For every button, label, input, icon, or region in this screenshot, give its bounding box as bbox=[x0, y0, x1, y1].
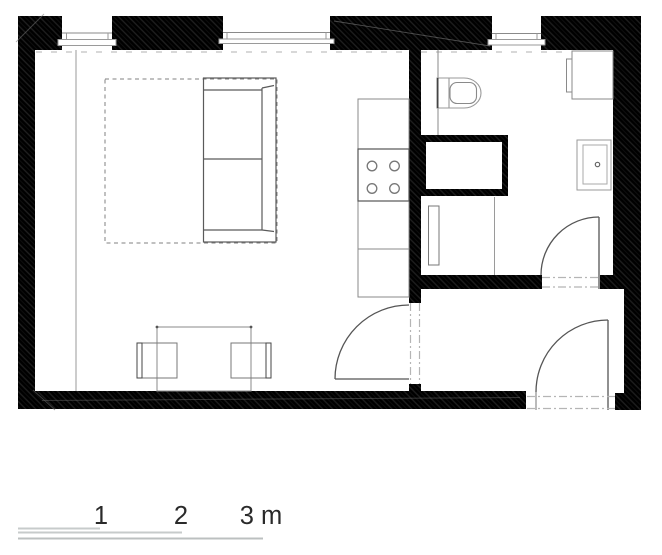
svg-text:1: 1 bbox=[94, 502, 108, 530]
svg-text:3 m: 3 m bbox=[240, 502, 283, 530]
svg-text:2: 2 bbox=[174, 502, 188, 530]
